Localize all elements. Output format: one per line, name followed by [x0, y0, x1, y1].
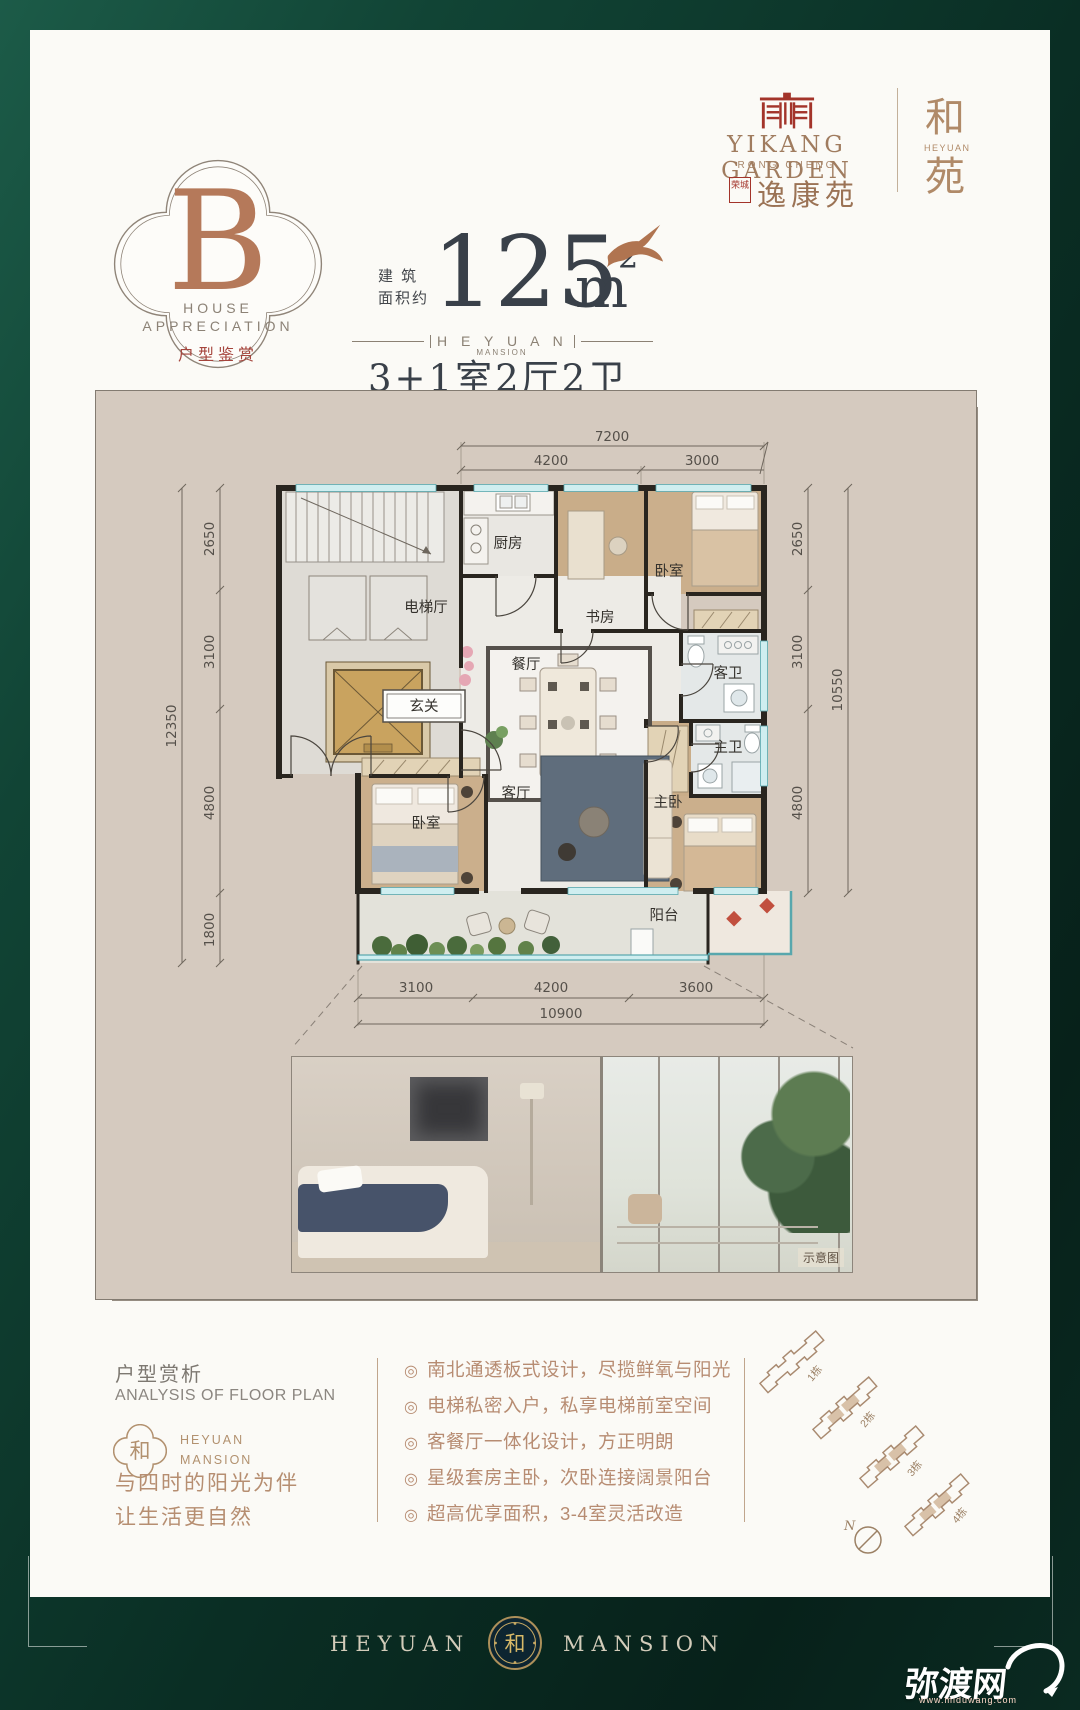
- watermark: 弥渡网 www.miduwang.com: [905, 1645, 1075, 1707]
- side-badge-en: HEYUAN: [924, 143, 971, 153]
- svg-text:玄关: 玄关: [410, 698, 439, 715]
- bullet-text: 南北通透板式设计，尽揽鲜氧与阳光: [427, 1356, 731, 1382]
- side-badge-bottom: 苑: [925, 157, 965, 197]
- svg-text:4800: 4800: [790, 786, 806, 820]
- building-4: [902, 1473, 972, 1537]
- svg-text:主卧: 主卧: [654, 794, 683, 811]
- svg-text:厨房: 厨房: [494, 535, 523, 552]
- svg-text:餐厅: 餐厅: [512, 656, 541, 673]
- bullet-icon: ◎: [404, 1469, 418, 1489]
- svg-text:客卫: 客卫: [714, 665, 743, 682]
- svg-text:4800: 4800: [202, 786, 218, 820]
- house-type-badge: B HOUSE APPRECIATION 户型鉴赏: [112, 158, 324, 370]
- building-3: [857, 1425, 927, 1489]
- brand-divider: [897, 88, 898, 192]
- bedroom-top-furniture: [692, 492, 758, 630]
- watermark-url: www.miduwang.com: [919, 1695, 1017, 1705]
- area-prefix-1: 建 筑: [378, 266, 434, 287]
- heyuan-divider-text: H E Y U A N: [437, 333, 568, 349]
- corner-bracket-left: [28, 1556, 87, 1647]
- svg-text:书房: 书房: [586, 609, 615, 626]
- bullet-icon: ◎: [404, 1397, 418, 1417]
- photo-lamp: [530, 1095, 533, 1205]
- badge-letter: B: [112, 182, 324, 302]
- svg-text:和: 和: [505, 1633, 526, 1656]
- floorplan-panel: 7200 4200 3000 12350 2650 3100 4800 1800…: [95, 390, 977, 1300]
- svg-text:2650: 2650: [790, 522, 806, 556]
- svg-text:卧室: 卧室: [655, 563, 684, 580]
- svg-text:7200: 7200: [595, 429, 629, 445]
- bullet-text: 星级套房主卧，次卧连接阔景阳台: [427, 1464, 712, 1490]
- living-furniture: [541, 756, 672, 881]
- brand-seal: 荣城: [729, 177, 751, 203]
- bullet-text: 客餐厅一体化设计，方正明朗: [427, 1428, 674, 1454]
- svg-text:10550: 10550: [830, 669, 846, 712]
- compass-icon: N: [843, 1519, 881, 1553]
- photo-lamp-shade: [520, 1083, 544, 1099]
- bullet-3: ◎客餐厅一体化设计，方正明朗: [404, 1428, 739, 1464]
- footer-heyuan: HEYUAN: [330, 1632, 470, 1656]
- svg-text:1800: 1800: [202, 913, 218, 947]
- site-plan: 1栋 2栋 3栋 4栋 N: [740, 1300, 990, 1580]
- badge-line3: 户型鉴赏: [112, 341, 324, 365]
- svg-text:12350: 12350: [164, 705, 180, 748]
- photo-rail2: [617, 1226, 819, 1228]
- svg-text:客厅: 客厅: [502, 785, 531, 802]
- area-prefix-2: 面积约: [378, 288, 429, 309]
- svg-text:4200: 4200: [534, 980, 568, 996]
- brand-sub-en: RONG CHENG: [667, 160, 907, 171]
- bullet-1: ◎南北通透板式设计，尽揽鲜氧与阳光: [404, 1356, 739, 1392]
- watermark-swoosh-icon: [1000, 1639, 1070, 1699]
- bullet-text: 电梯私密入户，私享电梯前室空间: [427, 1392, 712, 1418]
- floor-plan: 7200 4200 3000 12350 2650 3100 4800 1800…: [96, 426, 976, 1051]
- svg-text:N: N: [843, 1519, 856, 1534]
- svg-text:3000: 3000: [685, 453, 719, 469]
- photo-artwork: [410, 1077, 488, 1141]
- bullet-icon: ◎: [404, 1433, 418, 1453]
- svg-text:主卫: 主卫: [714, 739, 743, 756]
- svg-text:卧室: 卧室: [412, 815, 441, 832]
- selling-points: ◎南北通透板式设计，尽揽鲜氧与阳光 ◎电梯私密入户，私享电梯前室空间 ◎客餐厅一…: [404, 1356, 739, 1536]
- svg-text:4200: 4200: [534, 453, 568, 469]
- analysis-logo-en1: HEYUAN: [180, 1430, 244, 1450]
- svg-text:3100: 3100: [790, 635, 806, 669]
- interior-photo: 示意图: [291, 1056, 853, 1273]
- building-2: [810, 1376, 880, 1440]
- brand-name-cn: 逸康苑: [757, 172, 859, 214]
- badge-line1: HOUSE: [112, 300, 324, 316]
- bullet-icon: ◎: [404, 1361, 418, 1381]
- gate-logo-icon: [758, 92, 816, 132]
- svg-text:2栋: 2栋: [857, 1409, 878, 1430]
- photo-rail1: [617, 1242, 819, 1244]
- svg-text:1栋: 1栋: [804, 1363, 825, 1384]
- footer-mansion: MANSION: [563, 1632, 725, 1656]
- side-badge-top: 和: [925, 98, 965, 138]
- heyuan-divider: H E Y U A N: [352, 333, 653, 349]
- bullet-text: 超高优享面积，3-4室灵活改造: [427, 1500, 683, 1526]
- analysis-title-en: ANALYSIS OF FLOOR PLAN: [115, 1387, 336, 1405]
- svg-text:阳台: 阳台: [650, 907, 679, 924]
- medallion-icon: 和: [487, 1615, 543, 1671]
- svg-text:10900: 10900: [540, 1006, 583, 1022]
- stairs: [286, 492, 444, 562]
- svg-text:4栋: 4栋: [949, 1505, 970, 1526]
- slogan-line2: 让生活更自然: [115, 1501, 253, 1531]
- svg-text:电梯厅: 电梯厅: [404, 599, 448, 616]
- svg-text:和: 和: [129, 1439, 150, 1463]
- swallow-icon: [604, 222, 666, 274]
- analysis-title-cn: 户型赏析: [115, 1358, 203, 1387]
- photo-chair: [628, 1194, 662, 1224]
- building-1: [757, 1330, 827, 1394]
- photo-plants: [730, 1063, 850, 1233]
- analysis-divider-left: [377, 1358, 378, 1522]
- badge-line2: APPRECIATION: [112, 318, 324, 334]
- slogan-line1: 与四时的阳光为伴: [115, 1467, 299, 1497]
- svg-text:3栋: 3栋: [904, 1458, 925, 1479]
- svg-text:3100: 3100: [399, 980, 433, 996]
- svg-text:3600: 3600: [679, 980, 713, 996]
- svg-text:2650: 2650: [202, 522, 218, 556]
- bullet-icon: ◎: [404, 1505, 418, 1525]
- svg-text:3100: 3100: [202, 635, 218, 669]
- bullet-2: ◎电梯私密入户，私享电梯前室空间: [404, 1392, 739, 1428]
- corner-bracket-right: [994, 1556, 1053, 1647]
- photo-tag: 示意图: [798, 1248, 844, 1267]
- bullet-4: ◎星级套房主卧，次卧连接阔景阳台: [404, 1464, 739, 1500]
- bullet-5: ◎超高优享面积，3-4室灵活改造: [404, 1500, 739, 1536]
